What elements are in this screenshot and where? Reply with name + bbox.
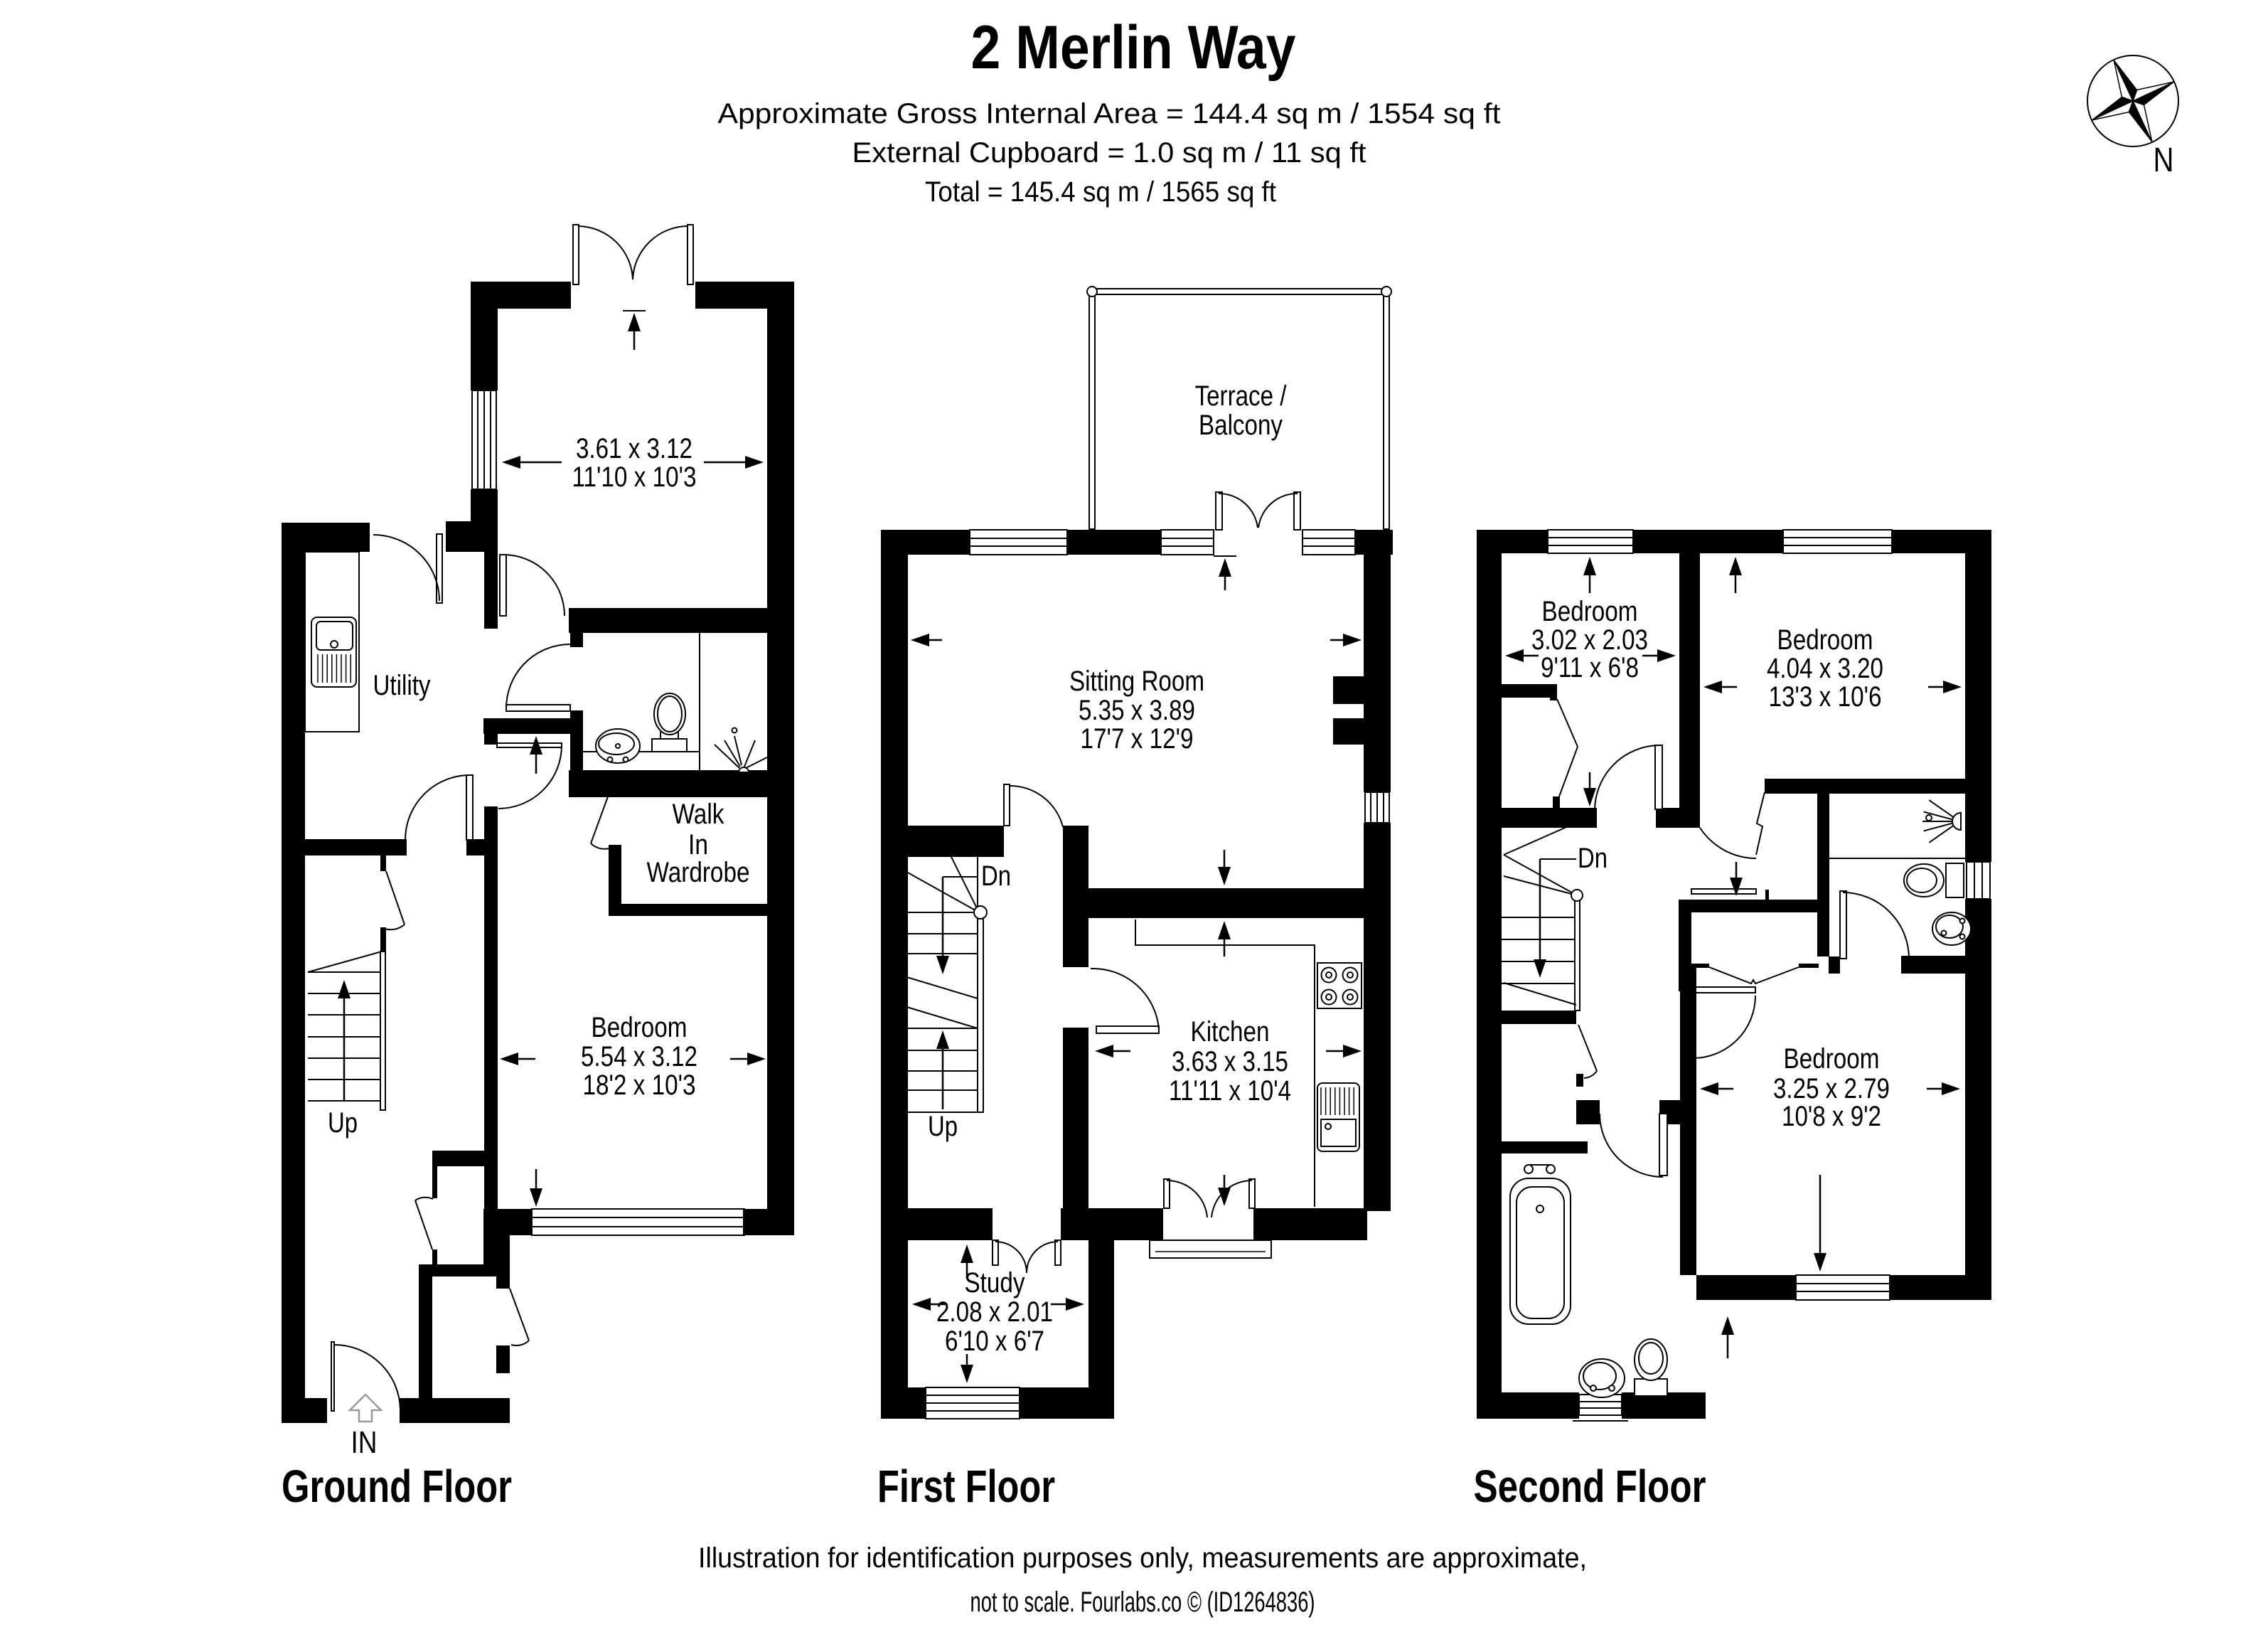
- svg-text:4.04 x 3.20: 4.04 x 3.20: [1767, 653, 1883, 684]
- svg-text:2.08 x 2.01: 2.08 x 2.01: [936, 1296, 1053, 1328]
- svg-text:IN: IN: [351, 1425, 378, 1460]
- svg-text:3.25 x 2.79: 3.25 x 2.79: [1773, 1073, 1890, 1104]
- svg-text:Up: Up: [928, 1111, 958, 1142]
- svg-text:5.54 x 3.12: 5.54 x 3.12: [581, 1041, 697, 1072]
- svg-text:Sitting Room: Sitting Room: [1069, 666, 1204, 697]
- svg-text:6'10 x 6'7: 6'10 x 6'7: [945, 1326, 1044, 1357]
- svg-text:Terrace /: Terrace /: [1195, 380, 1288, 412]
- svg-text:Dn: Dn: [1578, 843, 1608, 874]
- svg-text:External Cupboard = 1.0 sq m /: External Cupboard = 1.0 sq m / 11 sq ft: [852, 137, 1366, 169]
- svg-text:18'2 x 10'3: 18'2 x 10'3: [583, 1070, 696, 1101]
- svg-text:2 Merlin Way: 2 Merlin Way: [971, 14, 1296, 82]
- svg-text:Approximate Gross Internal Are: Approximate Gross Internal Area = 144.4 …: [718, 98, 1501, 129]
- svg-text:N: N: [2154, 142, 2174, 179]
- svg-text:Dn: Dn: [981, 860, 1011, 892]
- svg-text:Bedroom: Bedroom: [1777, 624, 1873, 656]
- svg-text:First Floor: First Floor: [877, 1461, 1055, 1512]
- svg-text:not to scale. Fourlabs.co © (: not to scale. Fourlabs.co © (ID1264836): [970, 1587, 1315, 1618]
- svg-text:11'10 x 10'3: 11'10 x 10'3: [572, 462, 697, 493]
- svg-text:Total = 145.4 sq m / 1565 sq f: Total = 145.4 sq m / 1565 sq ft: [925, 176, 1276, 208]
- svg-text:Walk: Walk: [673, 799, 725, 830]
- svg-text:11'11 x 10'4: 11'11 x 10'4: [1169, 1075, 1291, 1107]
- svg-text:3.63 x 3.15: 3.63 x 3.15: [1172, 1046, 1288, 1077]
- svg-text:Study: Study: [965, 1267, 1025, 1299]
- svg-text:Up: Up: [328, 1107, 358, 1139]
- svg-text:9'11 x 6'8: 9'11 x 6'8: [1541, 652, 1639, 683]
- svg-text:13'3 x 10'6: 13'3 x 10'6: [1769, 681, 1882, 713]
- svg-text:10'8 x 9'2: 10'8 x 9'2: [1782, 1101, 1881, 1132]
- svg-text:Second Floor: Second Floor: [1474, 1461, 1706, 1512]
- svg-text:Wardrobe: Wardrobe: [647, 857, 750, 888]
- svg-text:3.02 x 2.03: 3.02 x 2.03: [1531, 624, 1648, 656]
- svg-text:In: In: [688, 829, 708, 860]
- svg-text:5.35 x 3.89: 5.35 x 3.89: [1079, 695, 1195, 726]
- svg-text:Ground Floor: Ground Floor: [282, 1461, 512, 1512]
- svg-text:Bedroom: Bedroom: [1542, 596, 1638, 627]
- svg-text:Balcony: Balcony: [1199, 410, 1283, 441]
- svg-text:Bedroom: Bedroom: [592, 1012, 688, 1043]
- svg-text:17'7 x 12'9: 17'7 x 12'9: [1081, 723, 1194, 755]
- svg-text:Bedroom: Bedroom: [1784, 1043, 1880, 1075]
- svg-text:Utility: Utility: [373, 670, 431, 701]
- svg-text:Illustration for identificatio: Illustration for identification purposes…: [698, 1542, 1587, 1574]
- svg-text:Kitchen: Kitchen: [1191, 1016, 1270, 1048]
- svg-text:3.61 x 3.12: 3.61 x 3.12: [576, 433, 692, 464]
